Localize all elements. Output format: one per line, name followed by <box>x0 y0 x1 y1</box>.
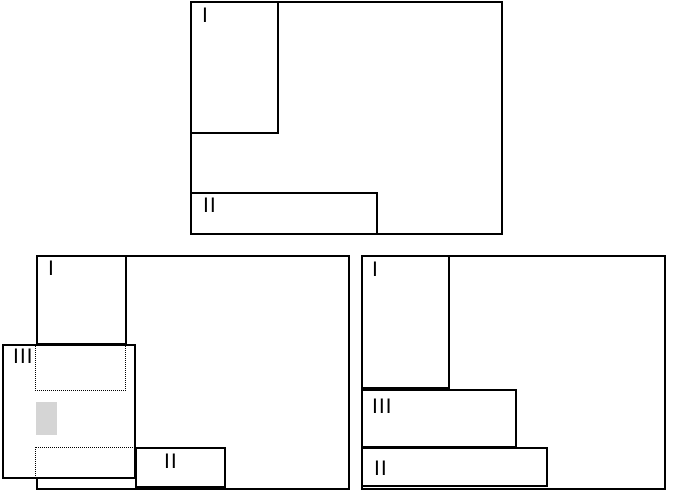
region-label: II <box>137 449 224 472</box>
panel-bottom-left-region-I: I <box>36 255 127 345</box>
dotted-outline-lower <box>35 447 135 478</box>
panel-top-region-I: I <box>190 1 279 134</box>
highlight-swatch <box>36 402 57 435</box>
panel-bottom-right-region-III: III <box>361 389 517 448</box>
region-label: II <box>363 449 546 479</box>
region-label: I <box>38 257 125 279</box>
panel-bottom-left-region-II: II <box>135 447 226 488</box>
panel-bottom-right-region-I: I <box>361 255 450 389</box>
panel-bottom-right-region-II: II <box>361 447 548 487</box>
region-label: II <box>192 194 376 216</box>
region-label: III <box>363 391 515 417</box>
region-label: I <box>192 3 277 26</box>
panel-top-region-II: II <box>190 192 378 235</box>
region-label: I <box>363 257 448 280</box>
dotted-outline-upper <box>35 345 126 391</box>
diagram-canvas: I II I III II I III II <box>0 0 674 493</box>
